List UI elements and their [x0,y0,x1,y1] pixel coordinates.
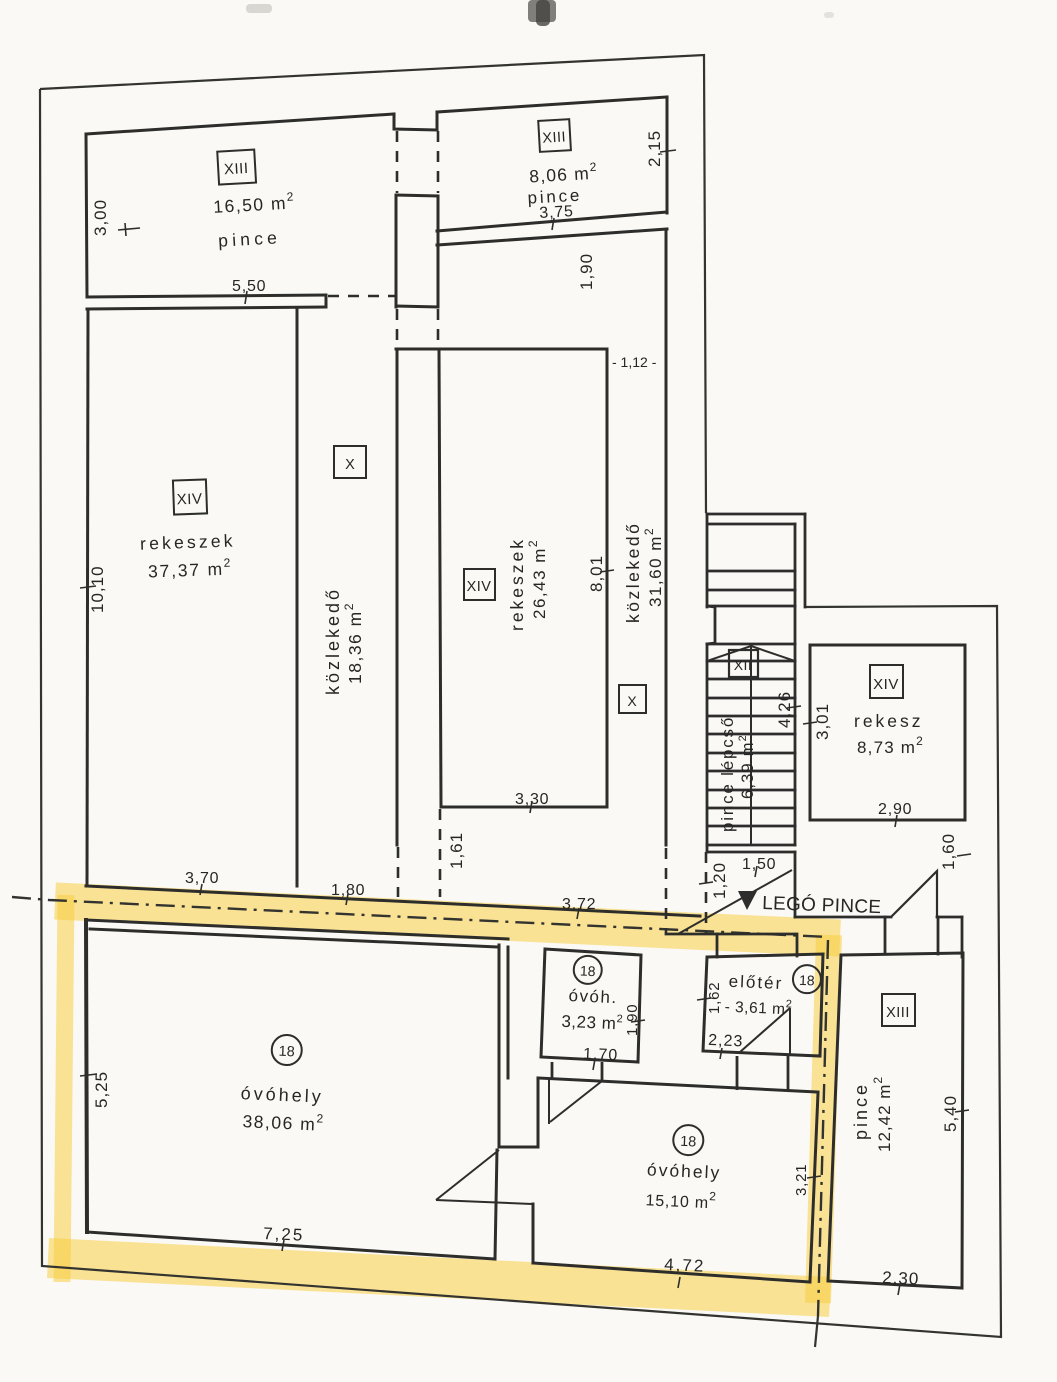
svg-text:12,42 m2: 12,42 m2 [871,1076,894,1152]
svg-text:3,30: 3,30 [515,791,549,808]
svg-text:1,60: 1,60 [939,833,958,870]
svg-text:XIII: XIII [224,160,249,178]
svg-text:pince: pince [218,227,282,250]
svg-text:2,23: 2,23 [708,1032,744,1051]
svg-text:közlekedő: közlekedő [323,587,343,695]
svg-text:1,90: 1,90 [624,1004,641,1036]
svg-text:XIV: XIV [873,676,899,693]
svg-text:óvóhely: óvóhely [240,1083,324,1107]
svg-text:előtér: előtér [728,972,783,993]
svg-text:1,50: 1,50 [742,856,776,873]
svg-text:óvóh.: óvóh. [568,986,618,1007]
svg-text:5,50: 5,50 [232,278,266,295]
svg-text:1,70: 1,70 [583,1046,619,1065]
svg-text:1,61: 1,61 [447,832,466,869]
svg-text:X: X [627,693,637,709]
svg-text:XII: XII [734,657,753,673]
svg-text:18: 18 [799,972,815,989]
svg-text:- 3,61 m2: - 3,61 m2 [724,996,792,1019]
svg-text:3,23 m2: 3,23 m2 [561,1011,623,1034]
svg-text:31,60 m2: 31,60 m2 [642,527,665,607]
svg-text:15,10 m2: 15,10 m2 [645,1186,717,1212]
svg-text:8,73 m2: 8,73 m2 [857,734,924,757]
svg-text:rekesz: rekesz [854,711,924,731]
svg-text:pince lépcső: pince lépcső [718,716,737,832]
svg-text:26,43 m2: 26,43 m2 [526,539,549,619]
svg-text:rekeszek: rekeszek [507,537,527,631]
svg-text:1,90: 1,90 [577,253,596,290]
svg-text:18: 18 [278,1044,295,1061]
svg-text:4,26: 4,26 [775,691,794,728]
svg-text:- 1,12 -: - 1,12 - [612,354,657,370]
svg-text:2,90: 2,90 [878,801,912,818]
svg-text:8,06 m2: 8,06 m2 [529,160,599,187]
svg-text:3,21: 3,21 [793,1164,810,1196]
svg-text:10,10: 10,10 [88,565,107,613]
svg-text:közlekedő: közlekedő [623,522,643,623]
svg-text:X: X [345,457,355,473]
svg-text:18: 18 [680,1134,697,1151]
svg-text:pince: pince [851,1082,871,1140]
svg-text:5,40: 5,40 [941,1095,960,1132]
svg-text:XIV: XIV [467,579,492,595]
svg-text:8,01: 8,01 [587,555,606,592]
svg-text:5,25: 5,25 [92,1071,111,1108]
svg-text:38,06 m2: 38,06 m2 [242,1108,325,1135]
svg-text:16,50 m2: 16,50 m2 [213,189,296,217]
svg-text:LEGÓ PINCE: LEGÓ PINCE [762,892,882,918]
svg-text:XIII: XIII [542,129,567,146]
svg-text:6,39 m2: 6,39 m2 [737,734,757,799]
svg-text:XIII: XIII [886,1005,910,1021]
svg-text:4,72: 4,72 [664,1255,706,1276]
svg-text:37,37 m2: 37,37 m2 [148,556,233,582]
svg-text:rekeszek: rekeszek [140,530,236,553]
svg-text:3,75: 3,75 [539,203,574,222]
svg-text:3,00: 3,00 [91,199,110,236]
svg-text:óvóhely: óvóhely [647,1159,722,1182]
svg-text:2,15: 2,15 [645,130,664,167]
svg-text:18: 18 [580,963,596,980]
svg-text:18,36 m2: 18,36 m2 [342,602,365,684]
svg-text:1,20: 1,20 [710,862,729,899]
svg-text:XIV: XIV [176,491,202,509]
svg-text:2,30: 2,30 [882,1268,920,1289]
